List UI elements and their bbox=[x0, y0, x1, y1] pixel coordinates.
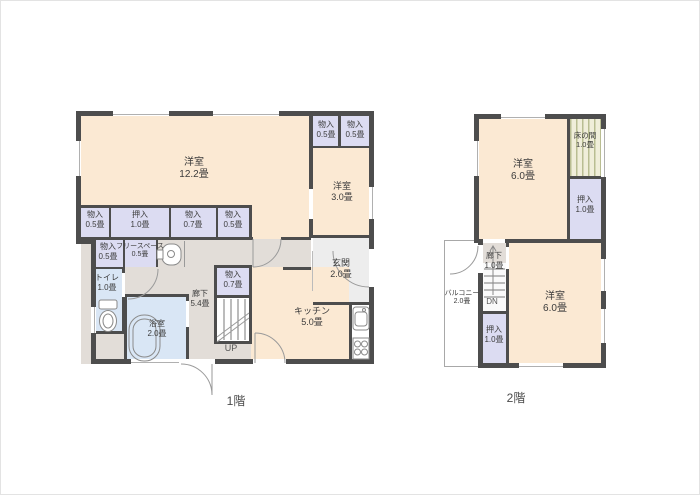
room-label-genkan: 玄関2.0畳 bbox=[311, 258, 371, 280]
room-label-closet-row4: 物入0.5畳 bbox=[218, 210, 248, 229]
f2-stairs-arrival-opening bbox=[483, 239, 505, 243]
hall-exterior-door-arc bbox=[181, 364, 212, 395]
room-label-closet-row1: 物入0.5畳 bbox=[80, 210, 110, 229]
kitchen-counter-strip bbox=[352, 304, 369, 362]
floorplan-canvas: 洋室12.2畳 物入0.5畳 物入0.5畳 洋室3.0畳 玄関2.0畳 物入0.… bbox=[0, 0, 700, 495]
f1-window-left-lower bbox=[91, 307, 96, 333]
f1-basin-nook-edge bbox=[184, 241, 185, 267]
room-label-toilet: トイレ1.0畳 bbox=[89, 273, 125, 292]
room-label-north: 洋室6.0畳 bbox=[493, 159, 553, 183]
floor1-caption: 1階 bbox=[206, 392, 266, 409]
f2-wall-left-upper bbox=[474, 114, 479, 243]
f1-wall-closet-top bbox=[81, 205, 251, 208]
f1-genkan-top bbox=[313, 235, 369, 238]
room-label-hallway2: 廊下1.0畳 bbox=[476, 251, 512, 270]
room-label-closet-tr1: 物入0.5畳 bbox=[311, 120, 341, 139]
room-main-extension bbox=[251, 208, 309, 239]
f1-window-bath bbox=[131, 359, 183, 364]
room-label-balcony: バルコニー2.0畳 bbox=[432, 290, 492, 307]
f1-wall-hall-top-a bbox=[81, 237, 253, 240]
f1-wall-hall-top-b bbox=[281, 237, 311, 240]
room-label-east: 洋室3.0畳 bbox=[312, 181, 372, 203]
room-label-oshiire-north: 押入1.0畳 bbox=[567, 195, 603, 214]
f1-wall-extB-left bbox=[249, 205, 252, 239]
stairs-up-label: UP bbox=[216, 343, 246, 354]
f1-stairs-top bbox=[214, 265, 252, 268]
f1-window-top-1 bbox=[113, 111, 169, 116]
f2-oshiire-s-top bbox=[483, 311, 506, 314]
f2-window-right-2 bbox=[601, 259, 606, 291]
room-label-main: 洋室12.2畳 bbox=[164, 157, 224, 181]
f1-tr-closet-bottom bbox=[313, 146, 369, 148]
f1-kitchen-top bbox=[283, 267, 311, 270]
f2-window-top bbox=[501, 114, 545, 119]
f1-toilet-bottom bbox=[93, 331, 122, 334]
floor2-caption: 2階 bbox=[486, 389, 546, 406]
f1-counter-wall bbox=[349, 304, 352, 362]
f1-window-left bbox=[76, 141, 81, 176]
f2-window-left bbox=[474, 141, 479, 176]
f1-backdoor-opening bbox=[179, 359, 215, 364]
f1-closet-div-2 bbox=[169, 208, 171, 237]
f2-tokonoma-div bbox=[570, 176, 601, 179]
room-label-south: 洋室6.0畳 bbox=[525, 291, 585, 315]
room-label-kitchen: キッチン5.0畳 bbox=[282, 306, 342, 328]
f1-closet-w-bottom bbox=[93, 267, 125, 269]
f1-window-top-2 bbox=[213, 111, 279, 116]
f1-kitchen-door-opening bbox=[253, 359, 286, 364]
f1-genkan-bottom bbox=[313, 302, 369, 305]
room-label-closet-row3: 物入0.7畳 bbox=[178, 210, 208, 229]
room-label-bath: 浴室2.0畳 bbox=[127, 319, 187, 338]
f2-window-right-3 bbox=[601, 309, 606, 343]
room-label-tokonoma: 床の間1.0畳 bbox=[565, 131, 605, 149]
room-label-closet-tr2: 物入0.5畳 bbox=[340, 120, 370, 139]
f1-wall-left-lower bbox=[91, 244, 96, 364]
f2-window-bottom bbox=[519, 363, 563, 368]
room-label-closet-row2: 押入1.0畳 bbox=[125, 210, 155, 229]
room-label-closet-mid: 物入0.7畳 bbox=[215, 270, 251, 289]
room-label-free-space: フリースペース0.5畳 bbox=[110, 243, 170, 260]
room-label-oshiire-south: 押入1.0畳 bbox=[476, 325, 512, 344]
room-label-hallway: 廊下5.4畳 bbox=[170, 289, 230, 308]
f1-wall-right bbox=[369, 111, 374, 364]
